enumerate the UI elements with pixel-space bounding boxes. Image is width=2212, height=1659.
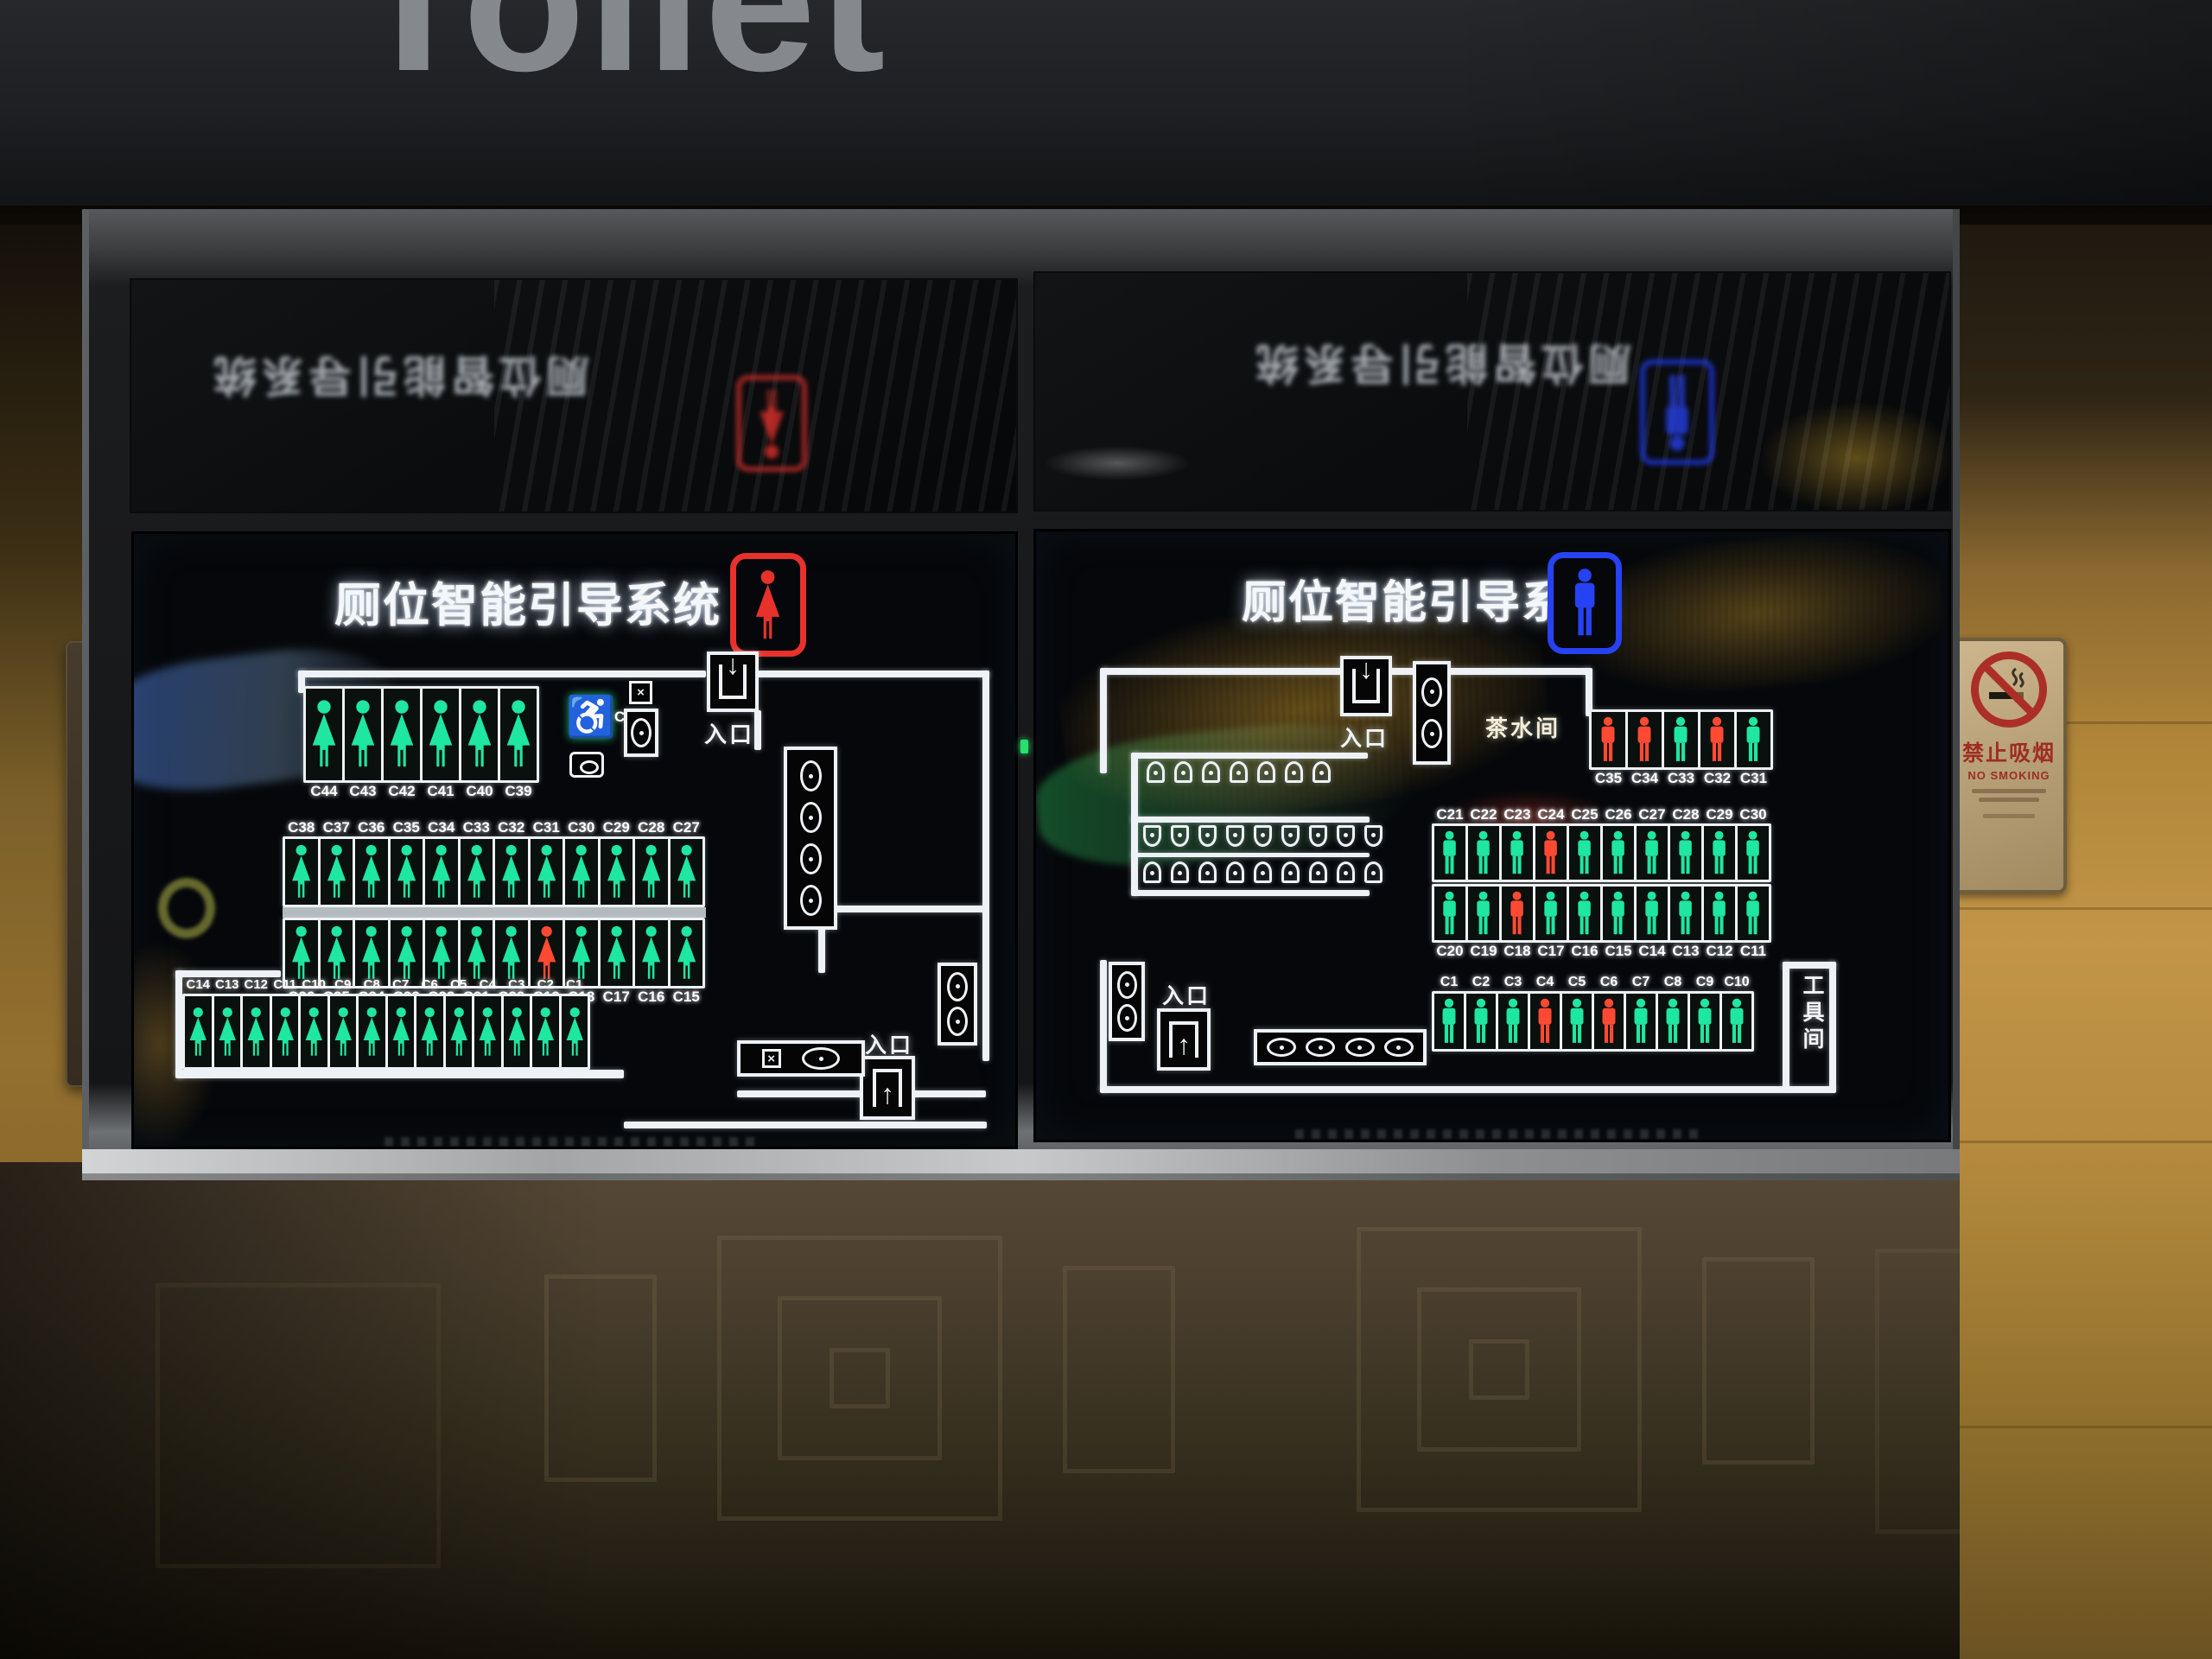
stall-c34: C34 — [423, 819, 461, 907]
toilet-icon — [569, 752, 604, 778]
stall-id-label: C11 — [273, 976, 296, 994]
female-person-icon — [182, 994, 214, 1070]
entrance-icon: ↓ — [707, 652, 759, 712]
frame-led — [1020, 740, 1028, 753]
urinal-icon — [1257, 761, 1275, 783]
stall-id-label: C43 — [349, 783, 376, 800]
screen-title: 厕位智能引导系统 — [334, 567, 721, 635]
male-person-icon — [1592, 991, 1626, 1052]
female-person-icon — [212, 994, 244, 1070]
male-person-icon — [1533, 823, 1569, 882]
stall-c15: C15 — [668, 918, 706, 1006]
stall-c38: C38 — [283, 819, 321, 907]
sink-icon — [800, 802, 822, 833]
stall-row-bottom: C14C13C12C11C10C9C8C7C6C5C4C3C2C1 — [182, 976, 590, 1070]
stall-c30: C30 — [563, 819, 601, 907]
sink-icon — [947, 972, 968, 1001]
stall-id-label: C39 — [505, 783, 531, 800]
stall-id-label: C4 — [480, 976, 496, 994]
header-shade — [1434, 0, 2212, 206]
urinal-icon — [1309, 825, 1327, 847]
stall-c42: C42 — [381, 686, 423, 800]
female-person-icon — [598, 836, 636, 907]
stall-block-divider — [283, 907, 706, 918]
stall-c15: C15 — [1600, 884, 1637, 960]
female-person-icon — [459, 686, 500, 783]
stall-row-side: C35C34C33C32C31 — [1589, 709, 1773, 787]
stall-id-label: C28 — [1672, 806, 1699, 823]
stall-id-label: C1 — [1440, 974, 1458, 991]
stall-id-label: C8 — [364, 976, 380, 994]
urinal-icon — [1309, 861, 1327, 883]
toilet-sign-title: Toilet — [353, 0, 836, 98]
urinal-icon — [1143, 861, 1161, 883]
stall-c22: C22 — [1465, 806, 1502, 882]
sink-icon — [1306, 1038, 1335, 1057]
entrance-icon: ↑ — [1157, 1008, 1211, 1071]
reflected-female-icon — [736, 375, 807, 472]
stall-id-label: C15 — [673, 988, 700, 1006]
stall-c2: C2 — [530, 976, 562, 1070]
male-person-icon — [1656, 991, 1690, 1052]
stall-id-label: C11 — [1740, 943, 1766, 960]
female-person-icon — [458, 836, 496, 907]
stall-id-label: C7 — [392, 976, 409, 994]
entrance-label: 入口 — [865, 1028, 913, 1059]
bezel-fine-print — [385, 1137, 756, 1147]
stall-id-label: C29 — [603, 819, 630, 836]
stall-id-label: C30 — [1739, 806, 1766, 823]
stall-row-mid-upper: C21C22C23C24C25C26C27C28C29C30 — [1432, 806, 1771, 882]
stall-c4: C4 — [1528, 974, 1562, 1052]
right-reflective-panel: 厕位智能引导系统 — [1033, 271, 1951, 512]
stall-id-label: C33 — [1668, 770, 1694, 787]
frame-sill — [82, 1149, 1960, 1180]
stall-id-label: C13 — [215, 976, 239, 994]
stall-id-label: C1 — [566, 976, 582, 994]
right-wall — [1960, 225, 2212, 1659]
urinal-icon — [1254, 825, 1272, 847]
male-person-icon — [1701, 884, 1738, 943]
stall-id-label: C17 — [1537, 943, 1564, 960]
stall-c31: C31 — [528, 819, 566, 907]
male-person-icon — [1560, 991, 1594, 1052]
stall-id-label: C10 — [302, 976, 326, 994]
stall-c25: C25 — [1567, 806, 1603, 882]
male-person-icon — [1701, 823, 1738, 882]
stall-id-label: C34 — [428, 819, 454, 836]
sink-icon — [1421, 719, 1442, 748]
stall-c10: C10 — [298, 976, 330, 1070]
stall-c33: C33 — [458, 819, 496, 907]
stall-id-label: C37 — [323, 819, 350, 836]
urinal-icon — [1281, 861, 1300, 883]
stall-c17: C17 — [598, 918, 636, 1006]
stall-id-label: C33 — [463, 819, 490, 836]
stall-id-label: C32 — [1704, 770, 1731, 787]
male-person-icon — [1432, 991, 1466, 1052]
urinal-icon — [1198, 861, 1217, 883]
female-person-icon — [385, 994, 417, 1070]
stall-id-label: C38 — [288, 819, 315, 836]
stall-c26: C26 — [1600, 806, 1637, 882]
stall-c12: C12 — [240, 976, 272, 1070]
male-person-icon — [1499, 823, 1535, 882]
stall-id-label: C14 — [186, 976, 210, 994]
stall-row-top: C44C43C42C41C40C39 — [303, 686, 539, 800]
stall-c28: C28 — [632, 819, 671, 907]
male-person-icon — [1688, 991, 1722, 1052]
stall-id-label: C31 — [533, 819, 560, 836]
urinal-row-band-upper — [1143, 825, 1382, 847]
stall-id-label: C21 — [1436, 806, 1463, 823]
stall-id-label: C40 — [466, 783, 493, 800]
stall-c32: C32 — [493, 819, 531, 907]
no-smoking-text-cn: 禁止吸烟 — [1962, 736, 2056, 767]
stall-c4: C4 — [472, 976, 504, 1070]
stall-c35: C35 — [388, 819, 426, 907]
male-person-icon — [1600, 884, 1637, 943]
female-person-icon — [493, 836, 531, 907]
no-smoking-text-en: NO SMOKING — [1967, 769, 2050, 782]
stall-id-label: C16 — [1571, 943, 1598, 960]
urinal-icon — [1226, 825, 1244, 847]
entrance-label: 入口 — [1162, 979, 1211, 1010]
stall-id-label: C12 — [1706, 943, 1732, 960]
stall-row-mid-lower: C20C19C18C17C16C15C14C13C12C11 — [1432, 884, 1771, 960]
stall-id-label: C22 — [1470, 806, 1497, 823]
urinal-icon — [1337, 825, 1355, 847]
sink-icon — [1117, 971, 1137, 999]
stall-id-label: C2 — [1472, 974, 1490, 991]
stall-c3: C3 — [1496, 974, 1530, 1052]
stall-id-label: C6 — [422, 976, 438, 994]
female-person-icon — [327, 994, 359, 1070]
female-person-icon — [632, 836, 671, 907]
reflected-title: 厕位智能引导系统 — [1251, 335, 1631, 397]
female-person-icon — [270, 994, 302, 1070]
female-person-icon — [283, 836, 321, 907]
urinal-icon — [1147, 761, 1165, 783]
fine-print — [1972, 789, 2046, 793]
male-icon — [1548, 552, 1622, 654]
stall-id-label: C28 — [638, 819, 664, 836]
stall-id-label: C19 — [1470, 943, 1497, 960]
male-person-icon — [1625, 709, 1664, 770]
sink-icon — [631, 718, 652, 747]
tea-room-label: 茶水间 — [1485, 711, 1560, 743]
stall-c11: C11 — [1735, 884, 1771, 960]
stall-c31: C31 — [1734, 709, 1773, 787]
entrance-icon: ↑ — [860, 1056, 915, 1120]
stall-id-label: C29 — [1706, 806, 1732, 823]
stall-c13: C13 — [1668, 884, 1704, 960]
stall-id-label: C14 — [1638, 943, 1665, 960]
stall-id-label: C24 — [1537, 806, 1564, 823]
stall-id-label: C35 — [393, 819, 420, 836]
stall-id-label: C8 — [1664, 974, 1681, 991]
stall-c12: C12 — [1701, 884, 1738, 960]
female-person-icon — [342, 686, 384, 783]
female-person-icon — [381, 686, 423, 783]
urinal-icon — [1230, 761, 1248, 783]
stall-c16: C16 — [1567, 884, 1603, 960]
male-person-icon — [1600, 823, 1637, 882]
stall-c40: C40 — [459, 686, 500, 800]
female-person-icon — [498, 686, 539, 783]
stall-id-label: C10 — [1724, 974, 1749, 991]
female-person-icon — [559, 994, 591, 1070]
female-person-icon — [668, 836, 706, 907]
female-person-icon — [356, 994, 388, 1070]
stall-id-label: C34 — [1631, 770, 1658, 787]
stall-id-label: C5 — [450, 976, 467, 994]
stall-c17: C17 — [1533, 884, 1569, 960]
fine-print — [1979, 798, 2039, 802]
stall-id-label: C41 — [427, 783, 454, 800]
stall-c32: C32 — [1698, 709, 1737, 787]
stall-id-label: C20 — [1436, 943, 1463, 960]
female-person-icon — [528, 836, 566, 907]
sink-icon — [800, 843, 822, 874]
female-person-icon — [318, 836, 356, 907]
stall-c24: C24 — [1533, 806, 1569, 882]
stall-id-label: C4 — [1536, 974, 1554, 991]
no-smoking-sign: 禁止吸烟 NO SMOKING — [1951, 638, 2067, 893]
sink-icon — [1117, 1004, 1137, 1032]
female-person-icon — [472, 994, 504, 1070]
female-person-icon — [353, 836, 391, 907]
urinal-icon — [1254, 861, 1272, 883]
stall-id-label: C9 — [1696, 974, 1713, 991]
female-person-icon — [414, 994, 446, 1070]
stall-c1: C1 — [1432, 974, 1466, 1052]
stall-id-label: C15 — [1605, 943, 1631, 960]
female-person-icon — [298, 994, 330, 1070]
urinal-icon — [1337, 861, 1355, 883]
tool-room-label: 工具间 — [1796, 974, 1827, 1054]
womens-guidance-screen: 厕位智能引导系统 C44C43C42C41C40C39 ♿ C45 × ↓ 入口 — [131, 531, 1018, 1149]
stall-c41: C41 — [420, 686, 461, 800]
stall-id-label: C27 — [673, 819, 700, 836]
stall-id-label: C27 — [1638, 806, 1665, 823]
male-person-icon — [1735, 823, 1771, 882]
male-person-icon — [1589, 709, 1628, 770]
stall-c37: C37 — [318, 819, 356, 907]
urinal-icon — [1364, 825, 1382, 847]
stall-id-label: C17 — [603, 988, 630, 1006]
stall-c30: C30 — [1735, 806, 1771, 882]
sink-icon — [1421, 677, 1442, 707]
male-person-icon — [1567, 884, 1603, 943]
stall-id-label: C35 — [1595, 770, 1622, 787]
stall-id-label: C42 — [388, 783, 415, 800]
urinal-icon — [1364, 861, 1382, 883]
male-person-icon — [1465, 823, 1502, 882]
stall-c11: C11 — [270, 976, 302, 1070]
stall-c36: C36 — [353, 819, 391, 907]
male-person-icon — [1465, 884, 1502, 943]
urinal-icon — [1281, 825, 1300, 847]
urinal-icon — [1143, 825, 1161, 847]
male-person-icon — [1432, 884, 1468, 943]
stall-c6: C6 — [1592, 974, 1626, 1052]
stall-c35: C35 — [1589, 709, 1628, 787]
female-person-icon — [501, 994, 533, 1070]
stall-c6: C6 — [414, 976, 446, 1070]
male-person-icon — [1634, 823, 1670, 882]
female-person-icon — [443, 994, 475, 1070]
stall-c28: C28 — [1668, 806, 1704, 882]
sink-icon — [802, 1047, 840, 1070]
male-person-icon — [1567, 823, 1603, 882]
male-person-icon — [1528, 991, 1562, 1052]
urinal-icon — [1171, 861, 1189, 883]
entrance-label: 入口 — [1340, 721, 1389, 753]
sink-icon — [1267, 1038, 1296, 1057]
fine-print — [1983, 814, 2035, 818]
stall-c3: C3 — [501, 976, 533, 1070]
stall-row-bottom: C1C2C3C4C5C6C7C8C9C10 — [1432, 974, 1754, 1052]
fixture-icon: × — [762, 1049, 781, 1068]
stall-c8: C8 — [1656, 974, 1690, 1052]
sink-unit — [1109, 962, 1145, 1041]
sink-icon — [800, 760, 822, 791]
reflected-male-icon — [1640, 359, 1714, 465]
female-person-icon — [423, 836, 461, 907]
urinal-icon — [1313, 761, 1331, 783]
urinal-icon — [1226, 861, 1244, 883]
stall-c1: C1 — [559, 976, 591, 1070]
female-icon — [730, 553, 806, 657]
stall-c43: C43 — [342, 686, 384, 800]
male-person-icon — [1668, 823, 1704, 882]
photo-scene: Toilet — [0, 0, 2212, 1659]
sink-unit — [1413, 661, 1451, 765]
male-person-icon — [1496, 991, 1530, 1052]
stall-c44: C44 — [303, 686, 345, 800]
stall-id-label: C18 — [1503, 943, 1530, 960]
urinal-row-top — [1147, 761, 1331, 783]
stall-c16: C16 — [632, 918, 671, 1006]
sink-unit — [938, 963, 977, 1046]
entrance-icon: ↓ — [1340, 656, 1392, 716]
stall-id-label: C25 — [1571, 806, 1598, 823]
stall-c7: C7 — [385, 976, 417, 1070]
sink-counter — [1254, 1029, 1427, 1065]
stall-id-label: C26 — [1605, 806, 1631, 823]
stall-id-label: C13 — [1672, 943, 1699, 960]
stall-c20: C20 — [1432, 884, 1468, 960]
stall-c29: C29 — [598, 819, 636, 907]
stall-c27: C27 — [1634, 806, 1670, 882]
sink-icon — [947, 1007, 968, 1036]
left-reflective-panel: 厕位智能引导系统 — [130, 278, 1018, 513]
urinal-icon — [1198, 825, 1217, 847]
female-person-icon — [388, 836, 426, 907]
stall-c5: C5 — [1560, 974, 1594, 1052]
stall-id-label: C23 — [1503, 806, 1530, 823]
stall-id-label: C3 — [1504, 974, 1522, 991]
sink-icon — [800, 885, 822, 916]
urinal-icon — [1174, 761, 1192, 783]
mens-guidance-screen: 厕位智能引导系统 ↓ 入口 茶水间 C35C34C33C32C31 — [1033, 529, 1951, 1142]
stall-id-label: C12 — [244, 976, 268, 994]
bezel-fine-print — [1295, 1129, 1701, 1139]
stall-c34: C34 — [1625, 709, 1664, 787]
stall-c29: C29 — [1701, 806, 1738, 882]
fixture-icon: × — [629, 681, 652, 704]
stall-c13: C13 — [212, 976, 244, 1070]
female-person-icon — [668, 918, 706, 988]
female-person-icon — [563, 836, 601, 907]
male-person-icon — [1634, 884, 1670, 943]
male-person-icon — [1662, 709, 1700, 770]
stall-id-label: C31 — [1740, 770, 1767, 787]
sink-icon — [1384, 1038, 1414, 1057]
wheelchair-icon: ♿ — [566, 696, 615, 736]
stall-id-label: C6 — [1600, 974, 1618, 991]
stall-id-label: C3 — [508, 976, 524, 994]
stall-id-label: C32 — [498, 819, 524, 836]
male-person-icon — [1719, 991, 1754, 1052]
female-person-icon — [530, 994, 562, 1070]
no-smoking-icon — [1971, 652, 2047, 728]
stall-row-mid-upper: C38C37C36C35C34C33C32C31C30C29C28C27 — [283, 819, 705, 907]
male-person-icon — [1533, 884, 1569, 943]
male-person-icon — [1734, 709, 1773, 770]
urinal-row-band-lower — [1143, 861, 1382, 883]
stall-c10: C10 — [1719, 974, 1754, 1052]
stall-id-label: C44 — [310, 783, 337, 800]
sink-column — [784, 747, 837, 930]
stall-c19: C19 — [1465, 884, 1502, 960]
male-person-icon — [1735, 884, 1771, 943]
stall-id-label: C7 — [1632, 974, 1649, 991]
male-person-icon — [1624, 991, 1658, 1052]
male-person-icon — [1499, 884, 1535, 943]
stall-c5: C5 — [443, 976, 475, 1070]
female-person-icon — [240, 994, 272, 1070]
stall-c21: C21 — [1432, 806, 1468, 882]
stall-id-label: C36 — [358, 819, 385, 836]
stall-c7: C7 — [1624, 974, 1658, 1052]
stall-id-label: C2 — [537, 976, 554, 994]
female-person-icon — [598, 918, 636, 988]
male-person-icon — [1668, 884, 1704, 943]
female-person-icon — [303, 686, 345, 783]
stall-id-label: C9 — [334, 976, 351, 994]
sink-icon — [1345, 1038, 1375, 1057]
stall-c14: C14 — [1634, 884, 1670, 960]
reflected-title: 厕位智能引导系统 — [209, 347, 589, 410]
stall-c9: C9 — [327, 976, 359, 1070]
male-person-icon — [1464, 991, 1498, 1052]
entrance-label: 入口 — [704, 717, 754, 749]
stall-c14: C14 — [182, 976, 214, 1070]
stall-c27: C27 — [668, 819, 706, 907]
stall-c8: C8 — [356, 976, 388, 1070]
stall-id-label: C16 — [638, 988, 664, 1006]
stall-id-label: C30 — [568, 819, 594, 836]
urinal-icon — [1202, 761, 1220, 783]
stall-c18: C18 — [1499, 884, 1535, 960]
sink-unit — [624, 709, 658, 757]
female-person-icon — [420, 686, 461, 783]
urinal-icon — [1285, 761, 1303, 783]
toilet-header-sign: Toilet — [0, 0, 2212, 206]
stall-id-label: C5 — [1568, 974, 1586, 991]
